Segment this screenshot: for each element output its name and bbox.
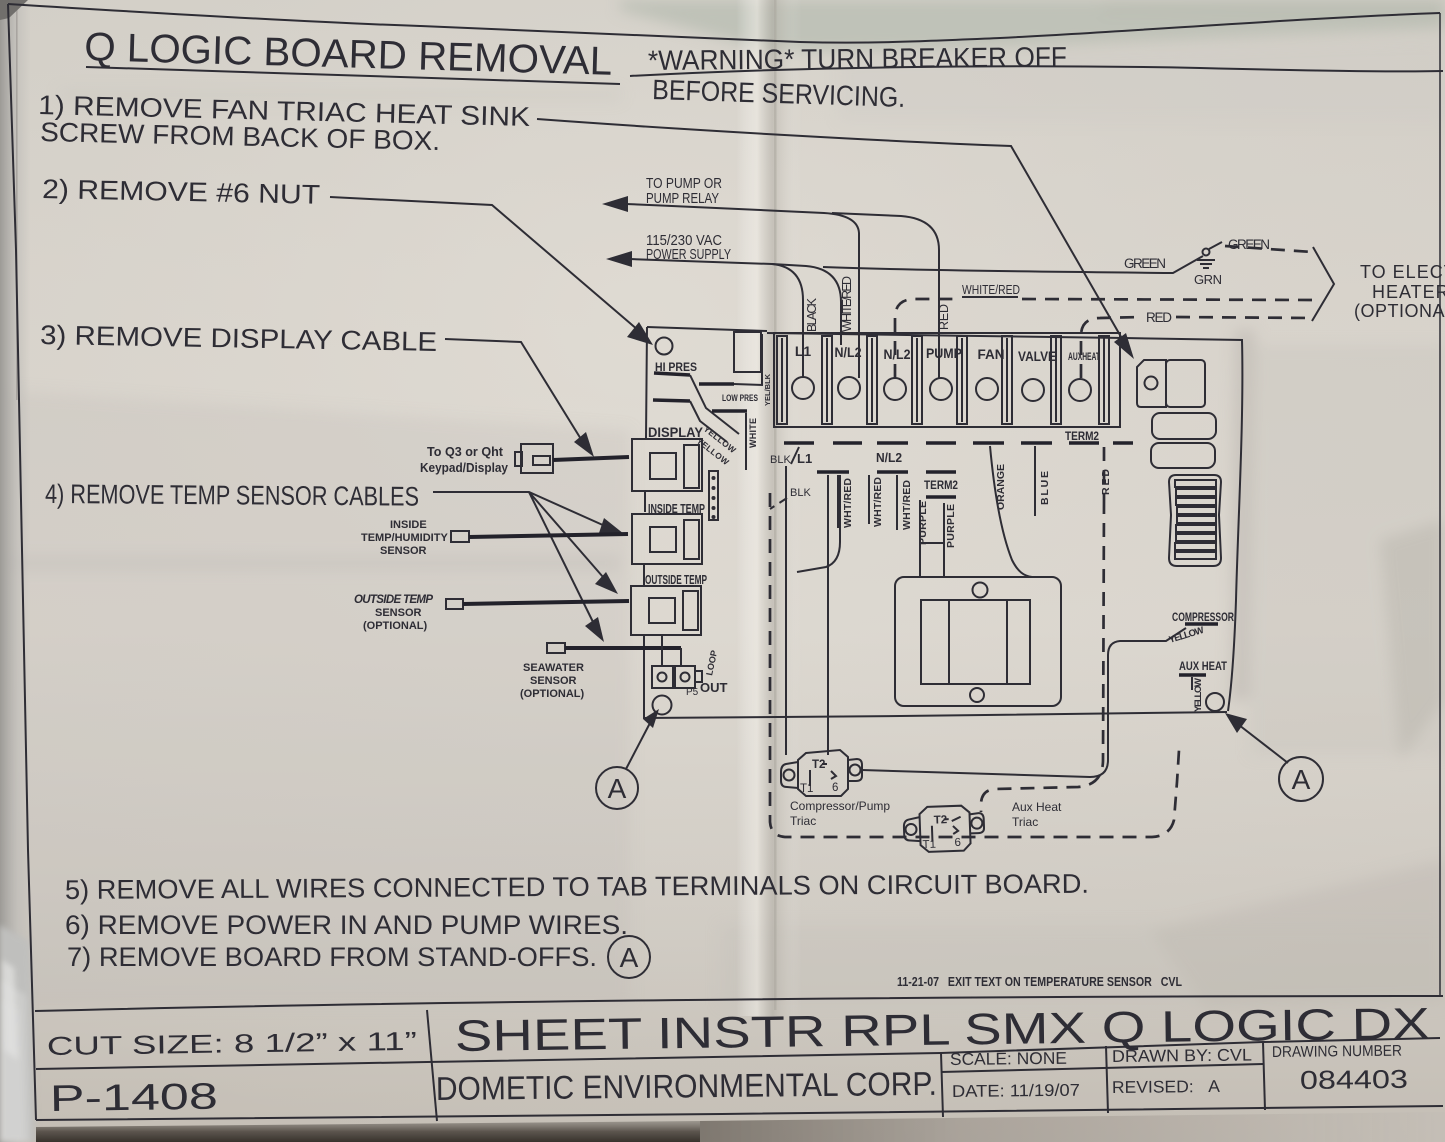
svg-text:TO ELECTRIC: TO ELECTRIC xyxy=(1360,262,1445,282)
svg-text:T1: T1 xyxy=(800,783,813,795)
svg-text:(OPTIONAL): (OPTIONAL) xyxy=(1354,301,1445,321)
svg-text:OUT: OUT xyxy=(700,680,728,695)
svg-text:P-1408: P-1408 xyxy=(50,1076,219,1119)
svg-text:CUT SIZE: 8 1/2” x 11”: CUT SIZE: 8 1/2” x 11” xyxy=(47,1026,417,1061)
svg-text:DATE: 11/19/07: DATE: 11/19/07 xyxy=(952,1081,1080,1101)
svg-text:Compressor/Pump: Compressor/Pump xyxy=(790,799,890,813)
svg-text:WHT/RED: WHT/RED xyxy=(872,477,884,527)
svg-text:A: A xyxy=(620,942,639,973)
svg-text:To Q3 or Qht: To Q3 or Qht xyxy=(427,445,504,459)
svg-text:OUTSIDE TEMP: OUTSIDE TEMP xyxy=(354,594,433,606)
svg-text:PURPLE: PURPLE xyxy=(917,501,929,545)
svg-text:REVISED: A: REVISED: A xyxy=(1112,1077,1221,1097)
svg-text:A: A xyxy=(1292,764,1311,795)
svg-text:6: 6 xyxy=(954,837,961,849)
svg-text:TERM2: TERM2 xyxy=(1065,429,1099,443)
svg-text:YELLOW: YELLOW xyxy=(1193,678,1204,712)
svg-text:L1: L1 xyxy=(797,451,812,466)
svg-text:T1: T1 xyxy=(922,839,936,851)
svg-text:LOW PRES: LOW PRES xyxy=(722,393,758,404)
svg-text:T2: T2 xyxy=(934,814,948,826)
svg-text:OUTSIDE TEMP: OUTSIDE TEMP xyxy=(645,573,707,587)
svg-text:TEMP/HUMIDITY: TEMP/HUMIDITY xyxy=(361,532,448,544)
svg-text:WHT/RED: WHT/RED xyxy=(842,478,854,528)
svg-text:6: 6 xyxy=(832,782,838,794)
svg-text:GREEN: GREEN xyxy=(1124,256,1166,271)
svg-text:Aux Heat: Aux Heat xyxy=(1012,800,1062,814)
svg-text:RED: RED xyxy=(1100,469,1112,495)
svg-text:GREEN: GREEN xyxy=(1228,237,1270,252)
svg-text:084403: 084403 xyxy=(1300,1064,1408,1095)
svg-text:BLK: BLK xyxy=(790,487,811,499)
svg-text:FAN: FAN xyxy=(978,346,1005,362)
svg-text:INSIDE: INSIDE xyxy=(390,519,427,531)
svg-text:(OPTIONAL): (OPTIONAL) xyxy=(363,620,427,632)
svg-text:HEATER: HEATER xyxy=(1372,282,1445,302)
svg-text:4) REMOVE TEMP SENSOR CABLES: 4) REMOVE TEMP SENSOR CABLES xyxy=(45,479,419,512)
svg-text:5) REMOVE ALL WIRES CONNECTED: 5) REMOVE ALL WIRES CONNECTED TO TAB TER… xyxy=(65,869,1089,905)
svg-text:RED: RED xyxy=(1146,310,1172,325)
svg-text:WHITE/RED: WHITE/RED xyxy=(840,276,854,332)
svg-text:WHT/RED: WHT/RED xyxy=(901,480,913,530)
svg-text:BLUE: BLUE xyxy=(1039,471,1051,505)
svg-text:Triac: Triac xyxy=(790,814,816,828)
svg-text:A: A xyxy=(608,773,627,804)
svg-text:SENSOR: SENSOR xyxy=(380,545,427,557)
svg-text:N/L2: N/L2 xyxy=(876,450,902,465)
svg-text:*WARNING* TURN BREAKER OFF: *WARNING* TURN BREAKER OFF xyxy=(648,41,1067,76)
svg-text:DISPLAY: DISPLAY xyxy=(648,424,704,440)
svg-text:TERM2: TERM2 xyxy=(924,478,958,492)
svg-text:BLACK: BLACK xyxy=(805,297,819,332)
svg-text:N/L2: N/L2 xyxy=(835,344,862,360)
svg-text:SENSOR: SENSOR xyxy=(375,607,422,619)
svg-text:AUX HEAT: AUX HEAT xyxy=(1179,661,1227,673)
svg-text:DRAWN BY: CVL: DRAWN BY: CVL xyxy=(1112,1046,1252,1066)
svg-text:6) REMOVE POWER IN AND PUMP WI: 6) REMOVE POWER IN AND PUMP WIRES. xyxy=(65,910,628,940)
svg-text:WHITE: WHITE xyxy=(748,418,758,448)
svg-text:N/L2: N/L2 xyxy=(884,346,911,362)
svg-text:DRAWING NUMBER: DRAWING NUMBER xyxy=(1272,1043,1402,1061)
svg-text:RED: RED xyxy=(937,304,951,330)
svg-text:SENSOR: SENSOR xyxy=(530,675,577,687)
svg-text:PUMP: PUMP xyxy=(926,345,962,361)
svg-text:VALVE: VALVE xyxy=(1018,348,1056,364)
svg-text:WHITE/RED: WHITE/RED xyxy=(962,283,1020,297)
svg-text:YEL/BLK: YEL/BLK xyxy=(763,373,772,406)
svg-text:L1: L1 xyxy=(795,343,812,359)
svg-text:Keypad/Display: Keypad/Display xyxy=(420,461,508,475)
svg-text:GRN: GRN xyxy=(1194,272,1222,287)
svg-text:BLK: BLK xyxy=(770,454,791,466)
svg-text:2) REMOVE #6 NUT: 2) REMOVE #6 NUT xyxy=(42,174,321,210)
svg-text:Triac: Triac xyxy=(1012,815,1038,829)
svg-text:7) REMOVE BOARD FROM STAND-OFF: 7) REMOVE BOARD FROM STAND-OFFS. xyxy=(67,942,597,972)
svg-text:P5: P5 xyxy=(686,687,699,698)
svg-text:SCALE: NONE: SCALE: NONE xyxy=(950,1049,1067,1069)
svg-text:11-21-07 EXIT TEXT ON TEMPER: 11-21-07 EXIT TEXT ON TEMPERATURE SENSOR… xyxy=(897,975,1182,989)
svg-text:SEAWATER: SEAWATER xyxy=(523,662,584,674)
svg-text:DOMETIC ENVIRONMENTAL CORP.: DOMETIC ENVIRONMENTAL CORP. xyxy=(436,1065,937,1107)
svg-text:PURPLE: PURPLE xyxy=(945,504,957,548)
svg-text:(OPTIONAL): (OPTIONAL) xyxy=(520,688,584,700)
svg-text:AUXHEAT: AUXHEAT xyxy=(1068,351,1100,363)
